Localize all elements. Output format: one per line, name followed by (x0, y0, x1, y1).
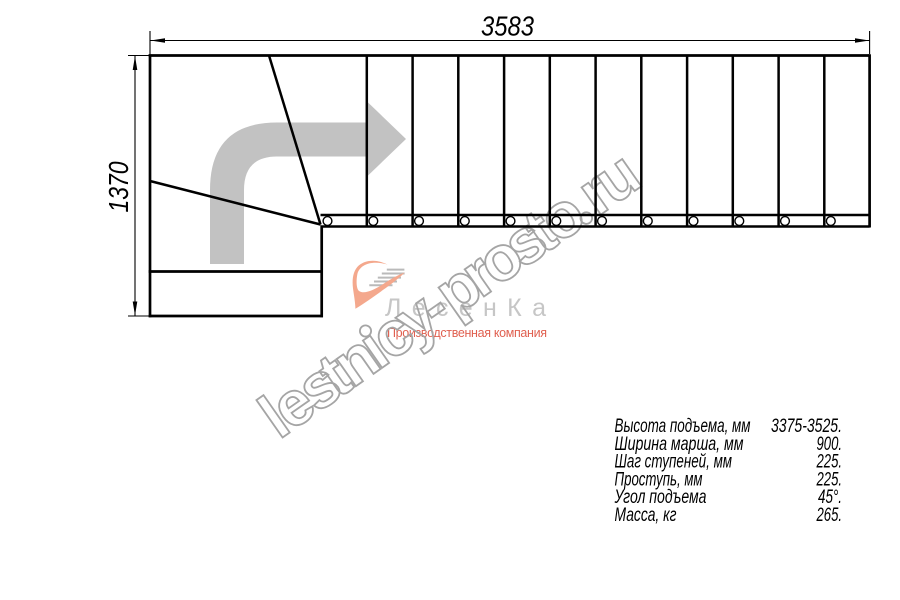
svg-text:Масса, кг: Масса, кг (615, 505, 677, 526)
svg-text:265.: 265. (816, 505, 842, 526)
svg-text:1370: 1370 (103, 161, 134, 212)
svg-text:3583: 3583 (481, 11, 534, 42)
